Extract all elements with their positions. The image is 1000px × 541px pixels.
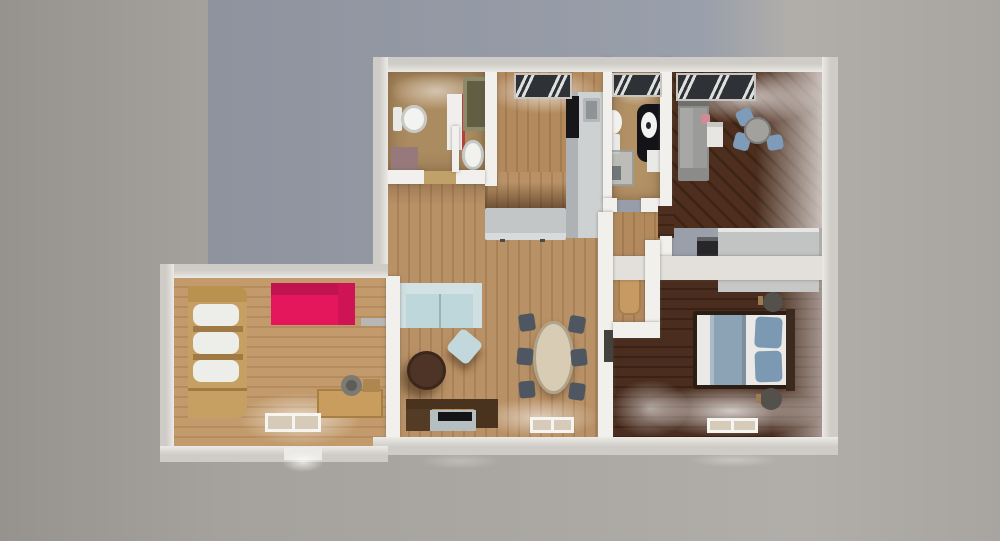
white-nightstand [707,122,723,147]
wall-bath-small-bottom [603,198,617,212]
tv-unit-left [406,409,432,431]
sideboard [718,228,819,256]
roof-window-bath [612,73,662,97]
sofa-arm [473,283,482,328]
wall-wc-stub [452,126,459,172]
plant-bowl-inner [346,380,357,391]
window-pane [734,421,755,430]
tv-screen [438,412,472,421]
wall-bathroom-bottom [388,170,424,184]
dark-cabinet [697,237,718,256]
basin-drain [646,122,651,129]
nightstand-round [763,292,783,312]
headboard [786,309,795,391]
dining-chair [570,348,588,367]
second-toilet [462,140,484,170]
nightstand-round [760,388,782,410]
dining-chair [568,382,586,401]
pillow [754,316,783,348]
kitchen-counter-low [485,208,566,240]
dark-open-door [604,330,613,362]
tv-unit-right [474,402,498,428]
pillow [754,351,782,383]
exterior-wall-bottom [373,437,838,455]
window-pane [533,420,551,430]
window-left-room [265,413,321,432]
dining-chair [518,380,535,398]
bedroom-top-door-opening [658,206,674,238]
window-pane [710,421,731,430]
dining-table [533,321,574,394]
window-pane [295,416,319,429]
dining-chair [516,347,533,365]
wing-wall-top [160,264,388,278]
coffee-table [407,351,446,390]
door-threshold [424,171,456,184]
pink-sofa-arm [338,283,355,325]
desk-tray [363,379,380,392]
window-living [530,417,574,433]
front-door [284,447,322,460]
exterior-wall-top [373,57,838,72]
window-bedroom-right [707,418,758,433]
exterior-wall-left [373,57,388,278]
wall-shelf [361,318,387,326]
towel-rolls [193,360,239,382]
wall-bathroom-bottom [456,170,485,184]
towel-rolls [193,304,239,326]
exterior-wall-right [822,57,838,455]
wall-leftroom-living [386,276,400,446]
window-pane [268,416,292,429]
wing-wall-left [160,264,174,462]
wall-bedroom-door-jamb [660,236,672,258]
counter-foot [540,239,545,242]
roof-window-bedroom [676,73,756,101]
nightstand-wood-detail [756,394,761,403]
wall-kitchen-bath [603,58,612,200]
wing-wall-bottom [160,446,388,462]
wall-hall-nook-bottom [613,322,660,338]
roof-window-kitchen [514,73,572,99]
towel-rolls [193,332,239,354]
bath-mat [391,147,418,172]
oven [566,96,579,138]
wall-bathroom-right [485,70,497,186]
round-table [744,117,771,144]
dining-chair [518,313,536,332]
double-bed-blanket [710,315,746,385]
floorplan-3d-view[interactable] [0,0,1000,541]
wall-hall-nook-right [645,240,660,324]
sofa-seam [439,294,441,328]
wall-living-right [598,212,613,437]
shelving-top [188,286,247,302]
dining-chair [568,315,587,335]
window-pane [554,420,572,430]
toilet [401,105,427,133]
nightstand-wood-detail [758,296,763,305]
shelving-bottom-cabinet [188,388,247,418]
sofa-back [397,283,482,294]
counter-foot [500,239,505,242]
kitchen-sink [583,98,600,122]
